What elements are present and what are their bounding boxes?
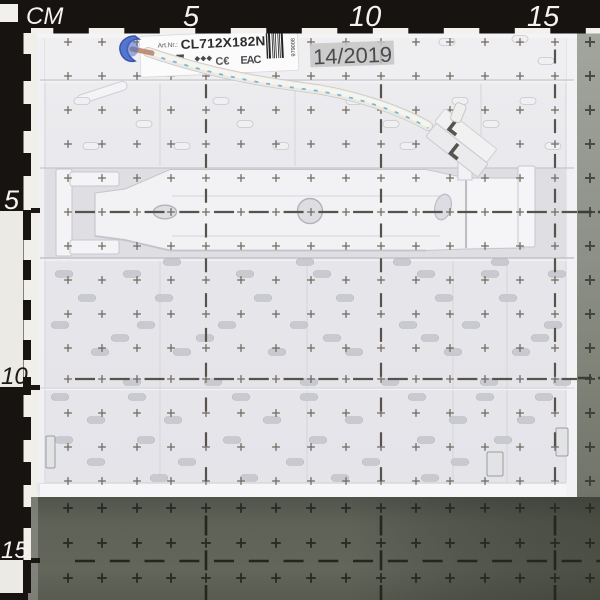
svg-text:Art.Nr.:: Art.Nr.: (158, 42, 179, 50)
svg-text:C€: C€ (215, 55, 230, 68)
svg-text:EAC: EAC (240, 54, 262, 67)
svg-text:979008: 979008 (290, 38, 297, 57)
svg-text:10: 10 (1, 363, 28, 390)
svg-text:5: 5 (4, 185, 20, 215)
svg-text:14/2019: 14/2019 (313, 43, 393, 70)
svg-text:15: 15 (1, 537, 28, 564)
svg-text:CM: CM (26, 3, 63, 30)
